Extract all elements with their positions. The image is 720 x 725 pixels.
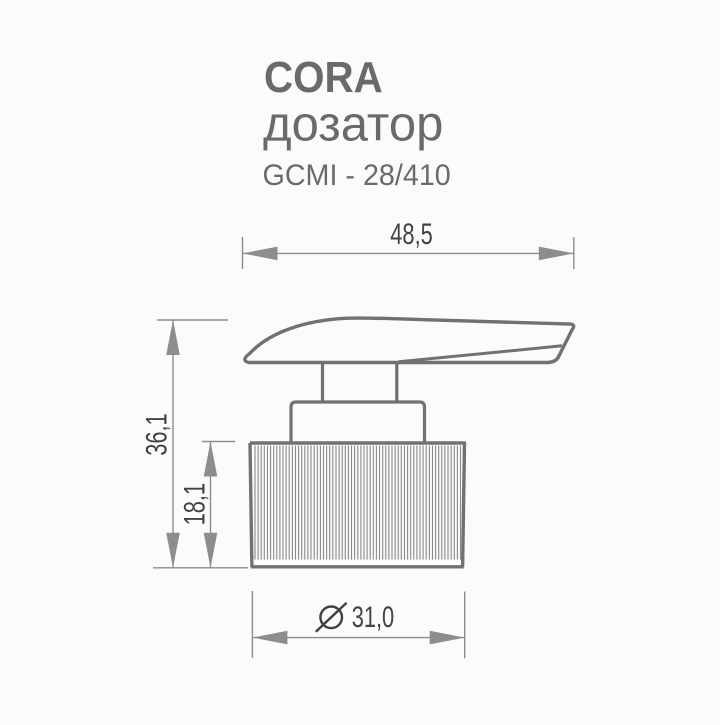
svg-text:GCMI - 28/410: GCMI - 28/410 [263, 158, 451, 192]
svg-text:36,1: 36,1 [139, 413, 173, 455]
svg-text:48,5: 48,5 [390, 217, 432, 251]
svg-text:18,1: 18,1 [177, 483, 211, 525]
svg-text:дозатор: дозатор [263, 98, 443, 152]
svg-text:31,0: 31,0 [352, 599, 394, 633]
svg-text:CORA: CORA [264, 53, 383, 102]
